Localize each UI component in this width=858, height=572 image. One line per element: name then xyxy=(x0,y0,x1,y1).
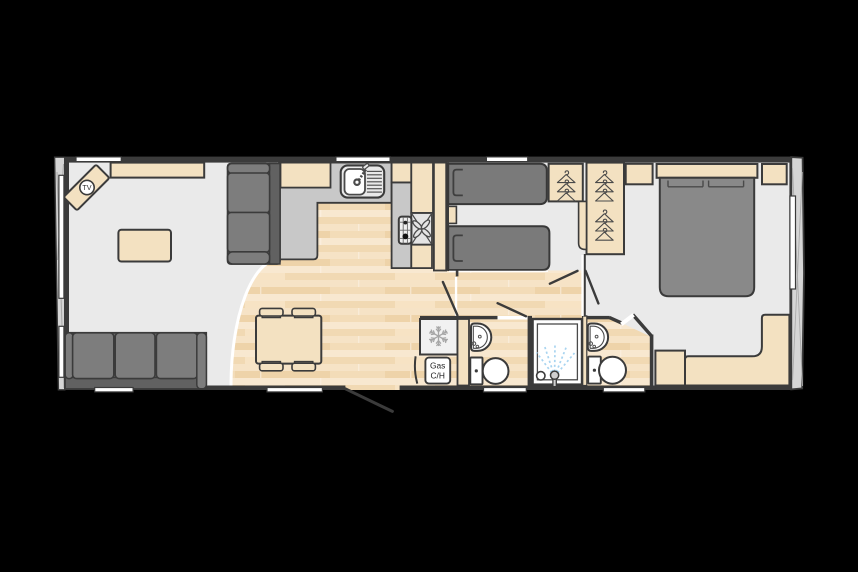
svg-text:Gas: Gas xyxy=(430,360,445,370)
svg-text:C/H: C/H xyxy=(430,371,444,381)
svg-text:TV: TV xyxy=(82,183,91,192)
